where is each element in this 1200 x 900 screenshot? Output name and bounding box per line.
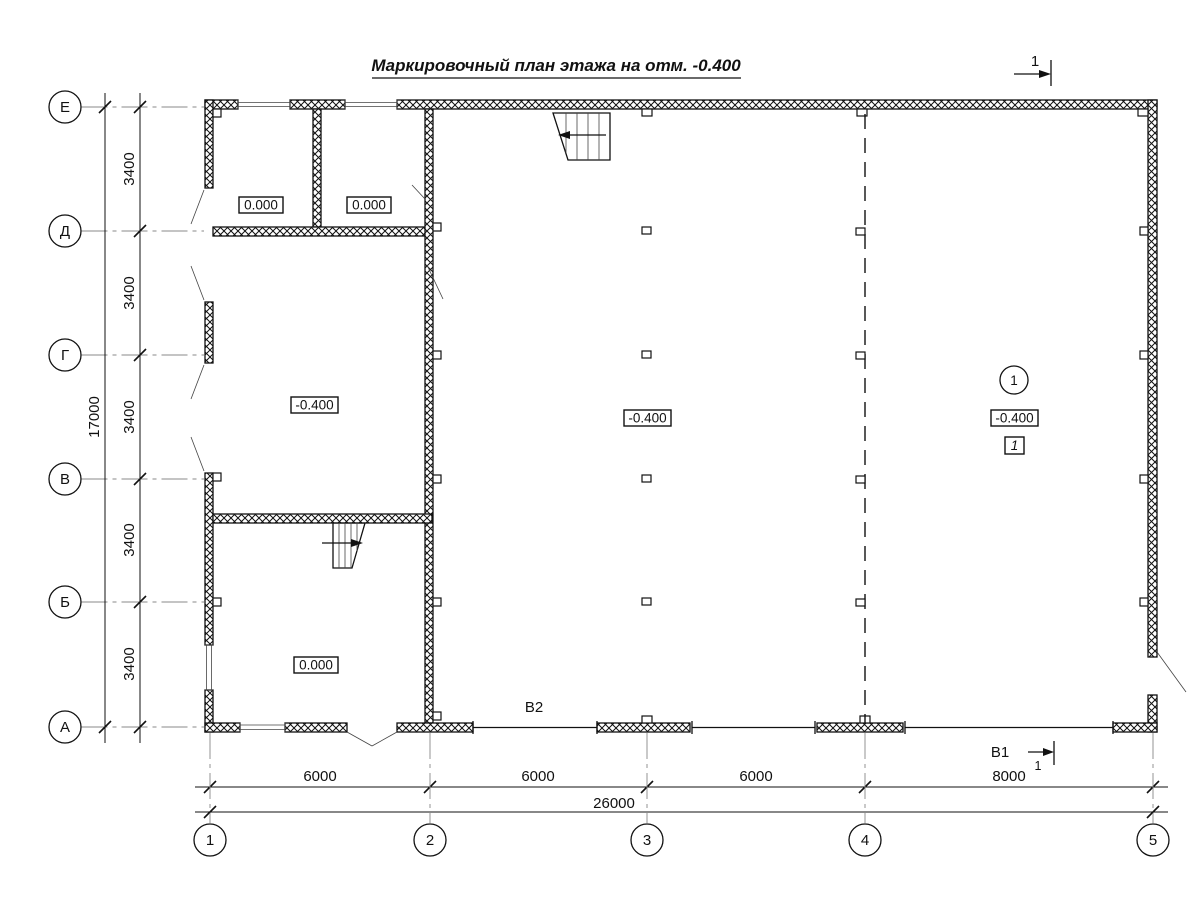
- elevation-value: -0.400: [628, 411, 666, 426]
- window-top-1: [238, 100, 290, 109]
- elevation-top-mid-room: 0.000: [347, 197, 391, 213]
- axis-col-2: 2: [414, 733, 446, 856]
- axis-row-label: Б: [60, 594, 70, 611]
- axis-col-3: 3: [631, 733, 663, 856]
- section-arrow-icon: [1039, 70, 1051, 78]
- axis-row-E: Е: [49, 91, 204, 123]
- elevation-value: 0.000: [244, 198, 278, 213]
- dim-col-span: 6000: [521, 768, 554, 785]
- floor-plan-page: Маркировочный план этажа на отм. -0.400 …: [0, 0, 1200, 900]
- position-box-number: 1: [1011, 438, 1019, 453]
- axis-row-label: А: [60, 719, 70, 736]
- axis-col-label: 1: [206, 832, 214, 849]
- columns-axis-4: [856, 114, 865, 723]
- elevation-right-hall: -0.400: [991, 410, 1038, 426]
- axis-row-B: Б: [49, 586, 204, 618]
- elevation-value: -0.400: [995, 411, 1033, 426]
- section-number-bottom: 1: [1035, 759, 1042, 773]
- axis-row-label: Е: [60, 99, 70, 116]
- dim-col-span: 8000: [992, 768, 1025, 785]
- axis-row-label: Г: [61, 347, 69, 364]
- axis-col-label: 2: [426, 832, 434, 849]
- stairs-lower: [322, 523, 365, 568]
- elevation-marks: 0.000 0.000 -0.400 -0.400 -0.400 0.000: [239, 197, 1038, 673]
- window-left: [205, 645, 213, 690]
- dim-row-span: 3400: [121, 647, 138, 680]
- utility-labels: В2 В1 1: [525, 699, 1054, 773]
- elevation-left-room: -0.400: [291, 397, 338, 413]
- axis-col-label: 3: [643, 832, 651, 849]
- section-mark-top: 1: [1014, 53, 1051, 86]
- axis-col-label: 5: [1149, 832, 1157, 849]
- axis-col-label: 4: [861, 832, 869, 849]
- col-axes: 1 2 3 4 5: [194, 733, 1169, 856]
- dim-col-total: 26000: [593, 795, 635, 812]
- axis-row-A: А: [49, 711, 204, 743]
- position-circle-number: 1: [1010, 373, 1018, 388]
- elevation-bottom-left-room: 0.000: [294, 657, 338, 673]
- windows: [205, 100, 397, 732]
- opening-leader-lines: [191, 185, 1186, 692]
- dim-row-span: 3400: [121, 523, 138, 556]
- drawing-header: Маркировочный план этажа на отм. -0.400: [371, 56, 741, 78]
- axis-col-1: 1: [194, 733, 226, 856]
- left-dimensions: 3400 3400 3400 3400 3400 17000: [86, 93, 146, 743]
- axis-col-5: 5: [1137, 733, 1169, 856]
- window-bottom: [240, 723, 285, 732]
- section-number-top: 1: [1031, 53, 1039, 70]
- axis-col-4: 4: [849, 733, 881, 856]
- bottom-dimensions: 6000 6000 6000 8000 26000: [195, 768, 1168, 818]
- dim-row-span: 3400: [121, 152, 138, 185]
- elevation-value: 0.000: [352, 198, 386, 213]
- elevation-value: 0.000: [299, 658, 333, 673]
- utility-label-v2: В2: [525, 699, 543, 716]
- elevation-value: -0.400: [295, 398, 333, 413]
- dim-row-span: 3400: [121, 276, 138, 309]
- floor-plan-canvas: Маркировочный план этажа на отм. -0.400 …: [0, 0, 1200, 900]
- axis-row-D: Д: [49, 215, 204, 247]
- elevation-center-hall: -0.400: [624, 410, 671, 426]
- axis-row-V: В: [49, 463, 204, 495]
- section-arrow-icon: [1043, 748, 1054, 756]
- dim-row-span: 3400: [121, 400, 138, 433]
- dim-col-span: 6000: [303, 768, 336, 785]
- elevation-top-left-room: 0.000: [239, 197, 283, 213]
- window-top-2: [345, 100, 397, 109]
- section-label-v1: В1: [991, 744, 1009, 761]
- drawing-title: Маркировочный план этажа на отм. -0.400: [371, 56, 741, 75]
- axis-row-label: В: [60, 471, 70, 488]
- axis-row-label: Д: [60, 223, 70, 240]
- stairs-top: [553, 113, 610, 160]
- dim-col-span: 6000: [739, 768, 772, 785]
- axis-row-G: Г: [49, 339, 204, 371]
- dim-row-total: 17000: [86, 396, 103, 438]
